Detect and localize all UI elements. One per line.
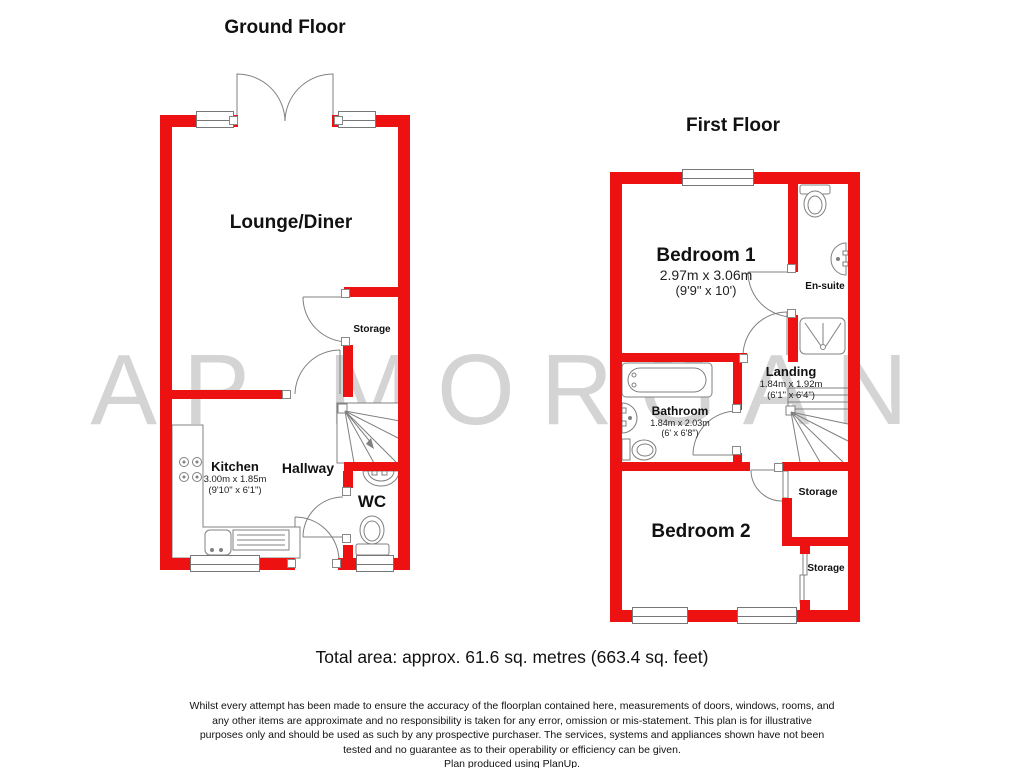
wall-segment bbox=[344, 287, 398, 297]
wall-segment bbox=[788, 315, 798, 362]
door-hinge bbox=[732, 404, 741, 413]
bathtub-icon bbox=[622, 363, 712, 397]
room-label-wc: WC bbox=[358, 492, 386, 512]
wall-segment bbox=[343, 471, 353, 488]
room-size-imperial: (9'9" x 10') bbox=[656, 283, 755, 298]
room-name: Storage bbox=[798, 486, 837, 498]
wc-door-icon bbox=[303, 497, 343, 537]
room-size-imperial: (9'10" x 6'1") bbox=[204, 485, 267, 496]
room-size-metric: 3.00m x 1.85m bbox=[204, 474, 267, 485]
wall-segment bbox=[782, 537, 860, 546]
door-hinge bbox=[282, 390, 291, 399]
room-size-metric: 1.84m x 1.92m bbox=[760, 379, 823, 390]
disclaimer-line: tested and no guarantee as to their oper… bbox=[0, 743, 1024, 758]
wall-segment bbox=[782, 462, 860, 471]
window bbox=[190, 555, 260, 572]
wall-segment bbox=[622, 353, 747, 362]
disclaimer-text: Whilst every attempt has been made to en… bbox=[0, 699, 1024, 768]
disclaimer-line: purposes only and should be used as such… bbox=[0, 728, 1024, 743]
disclaimer-line: Plan produced using PlanUp. bbox=[0, 757, 1024, 768]
window bbox=[338, 111, 376, 128]
bedroom2-door-icon bbox=[751, 470, 782, 501]
french-doors-icon bbox=[237, 74, 333, 121]
floorplan-page: AP MORGAN bbox=[0, 0, 1024, 768]
door-hinge bbox=[787, 264, 796, 273]
ensuite-toilet-icon bbox=[800, 185, 830, 217]
ground-floor-title: Ground Floor bbox=[224, 17, 345, 39]
wall-segment bbox=[788, 184, 798, 272]
bathroom-toilet-icon bbox=[622, 439, 656, 460]
door-hinge bbox=[332, 559, 341, 568]
door-hinge bbox=[229, 116, 238, 125]
room-label-ensuite: En-suite bbox=[805, 281, 844, 292]
door-hinge bbox=[341, 337, 350, 346]
hallway-door-icon bbox=[295, 350, 340, 394]
room-name: Landing bbox=[760, 364, 823, 379]
door-hinge bbox=[342, 487, 351, 496]
room-label-ff-storage-lower: Storage bbox=[807, 563, 844, 574]
room-name: Bedroom 1 bbox=[656, 245, 755, 267]
room-name: Lounge/Diner bbox=[230, 212, 352, 234]
disclaimer-line: Whilst every attempt has been made to en… bbox=[0, 699, 1024, 714]
door-hinge bbox=[341, 289, 350, 298]
wall-segment bbox=[610, 172, 622, 622]
bathroom-sink-icon bbox=[622, 403, 637, 433]
window bbox=[682, 169, 754, 186]
wall-segment bbox=[733, 362, 742, 410]
room-name: Hallway bbox=[282, 460, 334, 476]
wc-toilet-icon bbox=[356, 516, 389, 555]
room-label-bedroom2: Bedroom 2 bbox=[651, 521, 750, 543]
door-hinge bbox=[342, 534, 351, 543]
room-label-landing: Landing 1.84m x 1.92m (6'1" x 6'4") bbox=[760, 364, 823, 401]
window bbox=[737, 607, 797, 624]
room-label-kitchen: Kitchen 3.00m x 1.85m (9'10" x 6'1") bbox=[204, 459, 267, 496]
wall-segment bbox=[343, 545, 353, 558]
door-hinge bbox=[787, 309, 796, 318]
wall-segment bbox=[344, 462, 398, 471]
wall-segment bbox=[800, 600, 810, 610]
bedroom1-door-icon bbox=[743, 312, 787, 356]
room-label-bedroom1: Bedroom 1 2.97m x 3.06m (9'9" x 10') bbox=[656, 245, 755, 298]
room-name: WC bbox=[358, 492, 386, 512]
room-size-metric: 1.84m x 2.03m bbox=[650, 418, 710, 428]
room-label-lounge: Lounge/Diner bbox=[230, 212, 352, 234]
wall-segment bbox=[172, 390, 290, 399]
staircase-icon bbox=[337, 403, 400, 463]
room-label-gf-storage: Storage bbox=[353, 324, 390, 335]
room-name: Kitchen bbox=[204, 459, 267, 474]
door-hinge bbox=[732, 446, 741, 455]
room-name: Storage bbox=[807, 563, 844, 574]
wall-segment bbox=[343, 345, 353, 397]
window bbox=[632, 607, 688, 624]
disclaimer-line: any other items are approximate and no r… bbox=[0, 714, 1024, 729]
wall-segment bbox=[848, 172, 860, 622]
room-label-ff-storage-upper: Storage bbox=[798, 486, 837, 498]
room-label-bathroom: Bathroom 1.84m x 2.03m (6' x 6'8") bbox=[650, 404, 710, 438]
first-floor-title: First Floor bbox=[686, 115, 780, 137]
front-door-icon bbox=[295, 517, 339, 562]
room-name: Bathroom bbox=[650, 404, 710, 418]
storage-door-icon bbox=[303, 297, 348, 342]
total-area-text: Total area: approx. 61.6 sq. metres (663… bbox=[0, 647, 1024, 668]
window bbox=[356, 555, 394, 572]
wall-segment bbox=[610, 462, 750, 471]
room-size-imperial: (6' x 6'8") bbox=[650, 428, 710, 438]
room-size-metric: 2.97m x 3.06m bbox=[656, 267, 755, 283]
room-size-imperial: (6'1" x 6'4") bbox=[760, 390, 823, 401]
door-hinge bbox=[774, 463, 783, 472]
room-label-hallway: Hallway bbox=[282, 460, 334, 476]
wall-segment bbox=[398, 115, 410, 570]
room-name: En-suite bbox=[805, 281, 844, 292]
door-hinge bbox=[287, 559, 296, 568]
door-hinge bbox=[334, 116, 343, 125]
wall-segment bbox=[160, 115, 172, 570]
wall-segment bbox=[800, 546, 810, 554]
ensuite-sink-icon bbox=[831, 243, 848, 275]
wc-sink-icon bbox=[363, 471, 399, 486]
room-name: Storage bbox=[353, 324, 390, 335]
door-hinge bbox=[739, 354, 748, 363]
room-name: Bedroom 2 bbox=[651, 521, 750, 543]
shower-icon bbox=[800, 318, 845, 354]
